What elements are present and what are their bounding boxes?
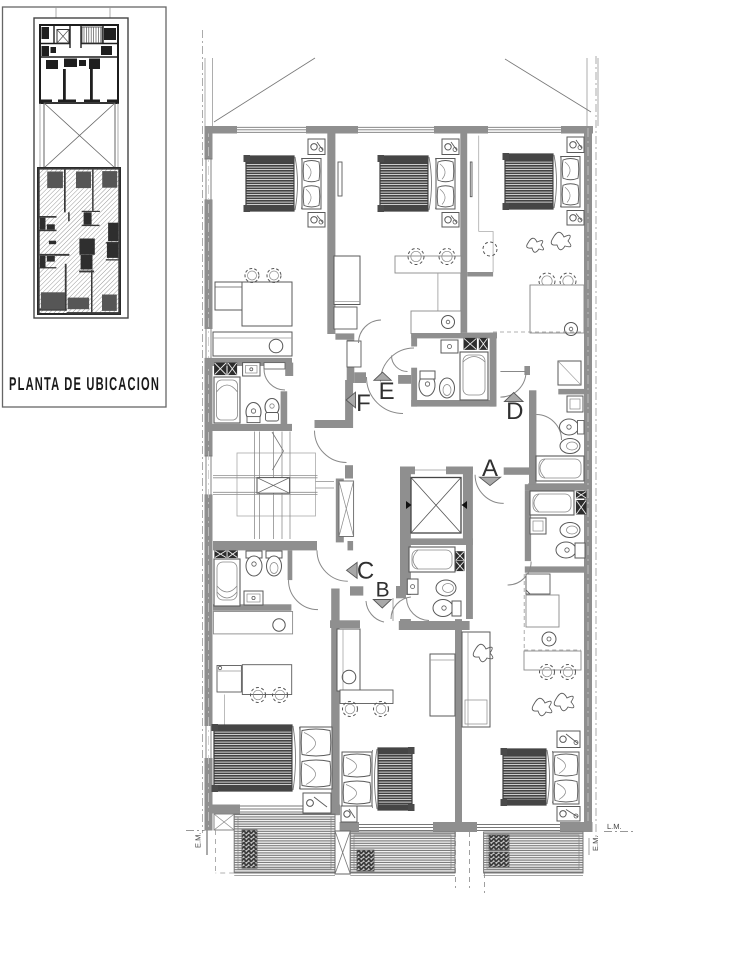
svg-text:F: F	[356, 390, 371, 417]
svg-text:E.M.: E.M.	[194, 833, 203, 848]
svg-text:E.M.: E.M.	[591, 836, 600, 851]
svg-text:L.M.: L.M.	[607, 822, 622, 831]
svg-text:E: E	[379, 378, 395, 405]
svg-text:B: B	[376, 579, 390, 602]
svg-text:C: C	[357, 557, 374, 584]
svg-text:PLANTA DE UBICACION: PLANTA DE UBICACION	[9, 373, 160, 394]
